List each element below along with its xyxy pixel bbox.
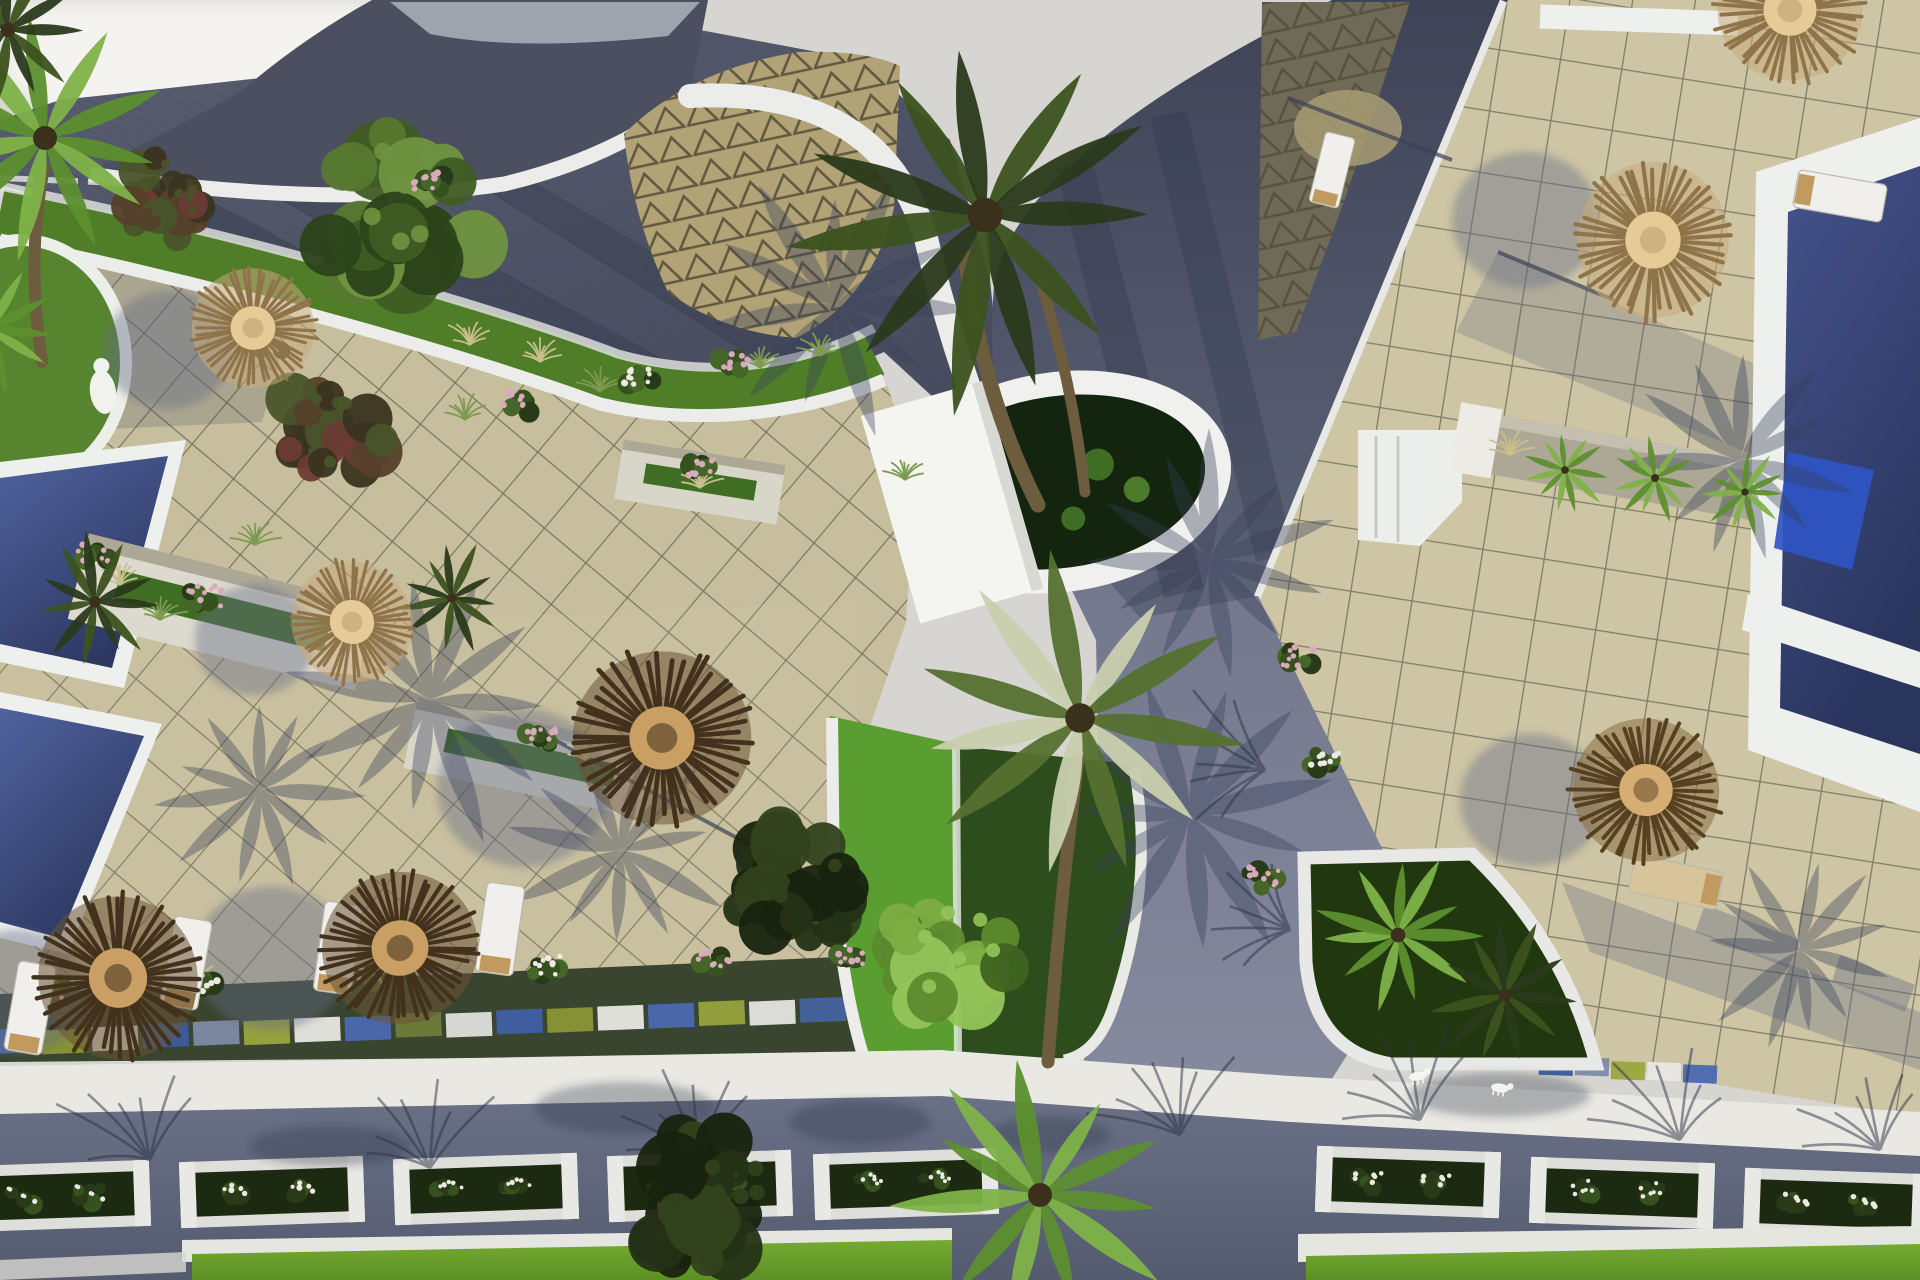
mosaic-tile — [1647, 1062, 1682, 1081]
mosaic-tile — [698, 1000, 745, 1026]
umbrella-shadow — [1452, 152, 1600, 288]
mosaic-tile — [648, 1003, 695, 1029]
canopy-shadow — [1410, 1073, 1590, 1117]
street-planter-box — [1529, 1157, 1715, 1229]
mosaic-tile — [446, 1012, 493, 1038]
street-planter-box — [0, 1160, 151, 1232]
street-planter-box — [1315, 1146, 1501, 1218]
mosaic-tile — [749, 1000, 796, 1026]
mosaic-tile — [193, 1020, 240, 1046]
street-planter-box — [179, 1156, 365, 1228]
canopy-shadow — [250, 1126, 410, 1166]
aerial-render — [0, 0, 1920, 1280]
mosaic-tile — [496, 1009, 543, 1035]
mosaic-tile — [547, 1007, 594, 1033]
mosaic-tile — [597, 1005, 644, 1031]
mosaic-tile — [799, 997, 846, 1023]
canopy-shadow — [790, 1100, 930, 1144]
